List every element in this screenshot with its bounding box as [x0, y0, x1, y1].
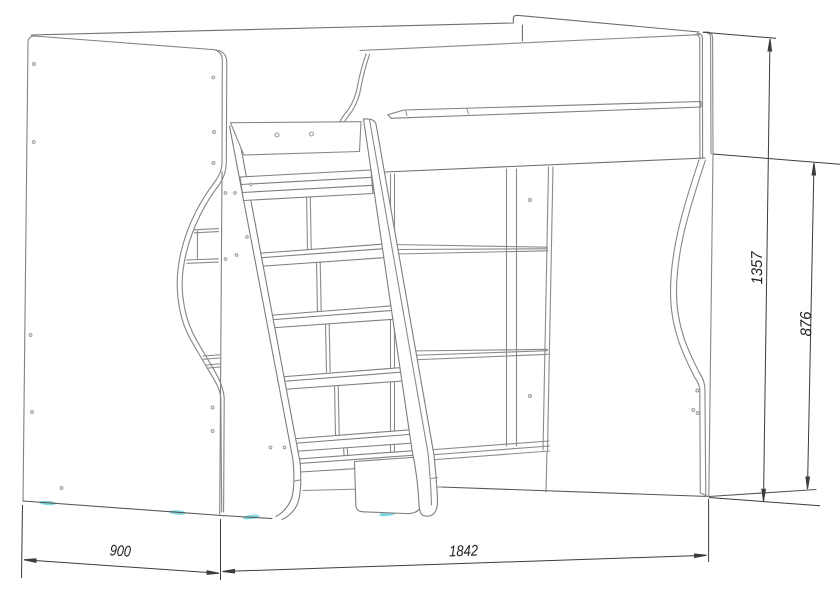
- svg-text:1842: 1842: [449, 542, 479, 560]
- svg-text:1357: 1357: [749, 250, 767, 285]
- svg-text:900: 900: [109, 542, 131, 560]
- svg-text:876: 876: [798, 311, 815, 337]
